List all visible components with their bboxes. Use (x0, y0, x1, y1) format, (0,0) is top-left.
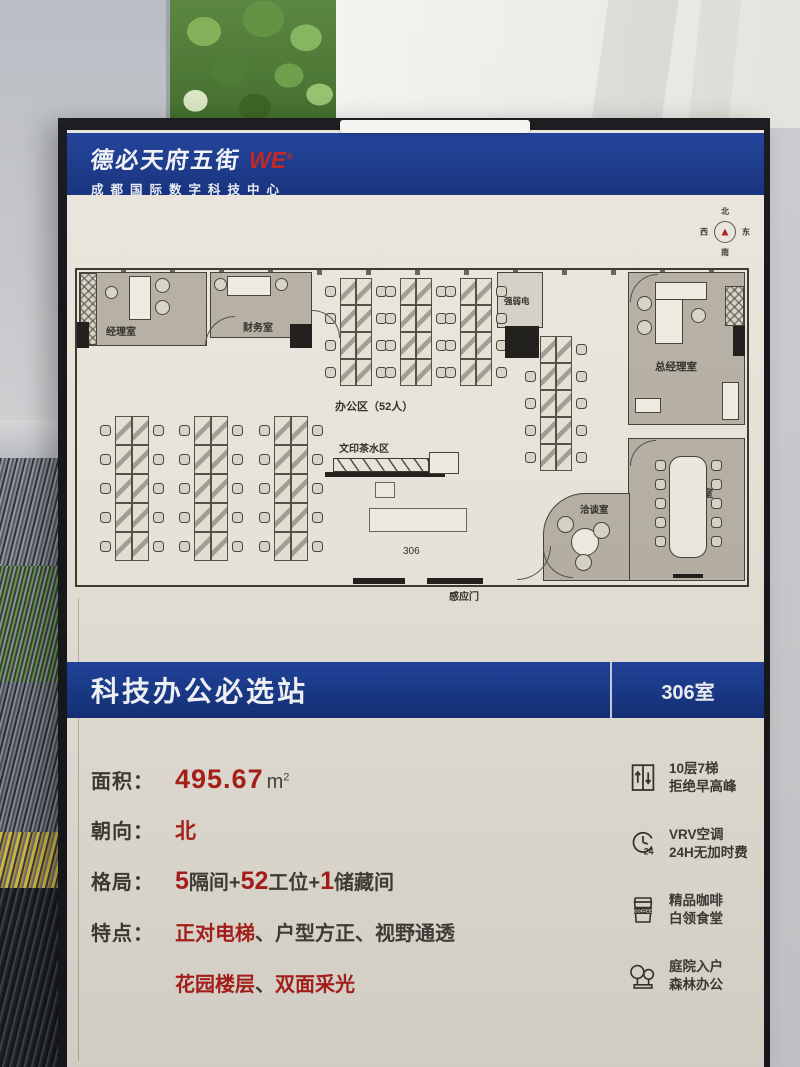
desk-cell (400, 332, 416, 359)
amenity-line1: 庭院入户 (669, 958, 723, 976)
svg-text:24: 24 (644, 846, 654, 856)
structural-pillar (733, 326, 745, 356)
chair (525, 425, 536, 436)
desk-cell (115, 445, 132, 474)
text-segment: 储藏间 (334, 872, 394, 894)
svg-text:COFFEE: COFFEE (634, 908, 652, 913)
cabinet-outline (369, 508, 467, 532)
desk-cell (356, 278, 372, 305)
structural-pillar (77, 322, 89, 348)
brand-subtitle: 成都国际数字科技中心 (91, 179, 764, 198)
desk-cell (400, 359, 416, 386)
chair (153, 541, 164, 552)
chair (179, 541, 190, 552)
chair (385, 313, 396, 324)
chair (232, 512, 243, 523)
chair (259, 425, 270, 436)
chair (312, 541, 323, 552)
meeting-table (669, 456, 707, 558)
chair (655, 517, 666, 528)
chair (153, 512, 164, 523)
amenity-item: COFFEE精品咖啡白领食堂 (627, 892, 764, 928)
round-chair (593, 522, 610, 539)
facing-label: 朝向： (91, 815, 175, 844)
area-label: 面积： (91, 765, 175, 794)
frame-glare (340, 120, 530, 133)
round-chair (155, 278, 170, 293)
desk-cell (115, 532, 132, 561)
facing-value: 北 (175, 815, 196, 845)
chair (312, 454, 323, 465)
text-segment: 隔间+ (189, 872, 241, 894)
desk-cell (211, 445, 228, 474)
text-segment: 52 (241, 867, 269, 895)
desk-cell (291, 503, 308, 532)
text-segment: 户型方正 (275, 923, 355, 945)
tea-counter (333, 458, 429, 472)
desk-cell (416, 305, 432, 332)
chair (525, 452, 536, 463)
chair (496, 367, 507, 378)
desk-cell (194, 474, 211, 503)
features-label: 特点： (91, 917, 175, 946)
desk-cell (115, 416, 132, 445)
round-chair (557, 516, 574, 533)
desk-cell (460, 278, 476, 305)
amenity-line2: 24H无加时费 (669, 844, 748, 862)
round-chair (275, 278, 288, 291)
chair (153, 425, 164, 436)
elevator-icon (627, 760, 659, 796)
title-banner: 科技办公必选站 306室 (67, 662, 764, 718)
room-label-manager: 经理室 (106, 323, 136, 338)
chair (232, 454, 243, 465)
chair (100, 541, 111, 552)
chair (445, 313, 456, 324)
chair (312, 425, 323, 436)
desk-cell (291, 445, 308, 474)
chair (100, 425, 111, 436)
desk-cell (194, 503, 211, 532)
amenity-line1: 10层7梯 (669, 760, 737, 778)
desk-cell (194, 532, 211, 561)
chair (576, 344, 587, 355)
text-segment: 正对电梯 (175, 923, 255, 945)
amenity-text: 庭院入户森林办公 (669, 958, 723, 994)
brand-name: 德必天府五街 (89, 141, 243, 175)
cabinet-hatch (725, 286, 744, 326)
trees-icon (627, 958, 659, 994)
amenity-item: 10层7梯拒绝早高峰 (627, 760, 764, 796)
desk-cell (211, 503, 228, 532)
amenity-text: 10层7梯拒绝早高峰 (669, 760, 737, 796)
round-chair (155, 300, 170, 315)
desk-cell (556, 336, 572, 363)
text-segment: 、 (255, 974, 275, 996)
chair (655, 479, 666, 490)
desk-cell (194, 416, 211, 445)
structural-pillar (673, 574, 703, 578)
desk-cell (132, 445, 149, 474)
plan-label: 文印茶水区 (339, 440, 389, 455)
desk-cell (115, 503, 132, 532)
chair (496, 286, 507, 297)
chair (232, 483, 243, 494)
chair (325, 340, 336, 351)
chair (711, 536, 722, 547)
desk-cell (274, 503, 291, 532)
chair (385, 367, 396, 378)
chair (445, 340, 456, 351)
layout-label: 格局： (91, 866, 175, 895)
desk-cell (556, 444, 572, 471)
text-segment: 花园楼层 (175, 974, 255, 996)
desk (227, 276, 271, 296)
amenity-line2: 森林办公 (669, 976, 723, 994)
spec-layout: 格局： 5隔间+52工位+1储藏间 (91, 866, 611, 899)
round-chair (637, 320, 652, 335)
cabinet-outline (375, 482, 395, 498)
window-with-trees (166, 0, 340, 126)
spec-area: 面积： 495.67 m2 (91, 764, 611, 797)
plan-label: 办公区（52人） (335, 398, 413, 414)
round-chair (691, 308, 706, 323)
desk-cell (132, 474, 149, 503)
structural-pillar (505, 326, 539, 358)
compass-north: 北 (721, 206, 729, 217)
desk-cell (274, 532, 291, 561)
spec-facing: 朝向： 北 (91, 815, 611, 848)
text-segment: 视野通透 (375, 923, 455, 945)
desk-cell (540, 336, 556, 363)
desk-cell (132, 503, 149, 532)
round-chair (575, 554, 592, 571)
desk-cell (274, 416, 291, 445)
chair (655, 460, 666, 471)
chair (576, 452, 587, 463)
amenity-line1: VRV空调 (669, 826, 748, 844)
room-label-talk: 洽谈室 (580, 502, 609, 516)
brand-logo-we: WE® (249, 147, 293, 174)
features-value-1: 正对电梯、户型方正、视野通透 (175, 917, 455, 946)
amenity-line1: 精品咖啡 (669, 892, 723, 910)
floor-plan: 经理室财务室强弱电总经理室会议室洽谈室办公区（52人）文印茶水区306感应门 (75, 268, 749, 587)
spec-list: 面积： 495.67 m2 朝向： 北 格局： 5隔间+52工位+1储藏间 特点… (91, 764, 611, 1019)
chair (711, 460, 722, 471)
desk-cell (356, 332, 372, 359)
compass-south: 南 (721, 247, 729, 258)
desk-cell (476, 278, 492, 305)
desk-cell (460, 359, 476, 386)
chair (312, 512, 323, 523)
desk-cell (132, 532, 149, 561)
chair (232, 541, 243, 552)
compass-arrow-icon: ▲ (719, 225, 731, 239)
structural-pillar (325, 472, 445, 477)
desk-cell (115, 474, 132, 503)
chair (100, 483, 111, 494)
compass-east: 东 (742, 227, 750, 238)
chair (259, 483, 270, 494)
chair (179, 512, 190, 523)
desk-cell (211, 416, 228, 445)
chair (259, 454, 270, 465)
text-segment: 1 (320, 867, 334, 895)
desk-cell (356, 305, 372, 332)
chair (259, 541, 270, 552)
structural-pillar (290, 324, 312, 348)
chair (179, 454, 190, 465)
chair (711, 498, 722, 509)
text-segment: 、 (355, 923, 375, 945)
desk-cell (476, 359, 492, 386)
desk-cell (476, 332, 492, 359)
structural-pillar (427, 578, 483, 584)
desk-cell (416, 359, 432, 386)
compass: 北 东 南 西 ▲ (699, 206, 751, 258)
desk-cell (132, 416, 149, 445)
chair (385, 286, 396, 297)
desk-cell (340, 332, 356, 359)
desk-cell (540, 363, 556, 390)
plan-label: 306 (403, 546, 420, 557)
chair (445, 367, 456, 378)
text-segment: 5 (175, 867, 189, 895)
desk (655, 282, 707, 300)
desk (129, 276, 151, 320)
clock-24-icon: 24 (627, 826, 659, 862)
amenity-item: 24VRV空调24H无加时费 (627, 826, 764, 862)
poster-body: 德必天府五街WE® 成都国际数字科技中心 北 东 南 西 ▲ 经理室财务室强弱电… (67, 130, 764, 1067)
desk-cell (211, 532, 228, 561)
text-segment: 工位+ (268, 872, 320, 894)
structural-pillar (353, 578, 405, 584)
area-unit: m2 (267, 771, 290, 794)
desk-cell (540, 390, 556, 417)
amenity-text: VRV空调24H无加时费 (669, 826, 748, 862)
desk-cell (194, 445, 211, 474)
chair (576, 425, 587, 436)
features-value-2: 花园楼层、双面采光 (175, 968, 355, 997)
chair (232, 425, 243, 436)
amenity-text: 精品咖啡白领食堂 (669, 892, 723, 928)
desk-cell (540, 417, 556, 444)
chair (445, 286, 456, 297)
chair (576, 371, 587, 382)
chair (100, 454, 111, 465)
amenity-line2: 白领食堂 (669, 910, 723, 928)
chair (525, 371, 536, 382)
chair (179, 483, 190, 494)
desk-cell (211, 474, 228, 503)
coffee-icon: COFFEE (627, 892, 659, 928)
amenity-item: 庭院入户森林办公 (627, 958, 764, 994)
desk-cell (340, 305, 356, 332)
brand-header: 德必天府五街WE® 成都国际数字科技中心 (67, 133, 764, 195)
room-label-gm: 总经理室 (655, 359, 697, 374)
desk (722, 382, 739, 420)
desk (635, 398, 661, 413)
chair (325, 286, 336, 297)
compass-west: 西 (700, 227, 708, 238)
chair (100, 512, 111, 523)
chair (385, 340, 396, 351)
round-chair (105, 286, 118, 299)
chair (496, 313, 507, 324)
room-label-finance: 财务室 (243, 319, 273, 334)
desk-cell (291, 474, 308, 503)
desk (429, 452, 459, 474)
area-value: 495.67 (175, 764, 264, 795)
chair (655, 498, 666, 509)
desk-cell (356, 359, 372, 386)
desk-cell (400, 278, 416, 305)
desk-cell (340, 359, 356, 386)
text-segment: 、 (255, 923, 275, 945)
poster-board: 德必天府五街WE® 成都国际数字科技中心 北 东 南 西 ▲ 经理室财务室强弱电… (58, 118, 770, 1067)
round-chair (214, 278, 227, 291)
door-swing-arc (312, 310, 340, 338)
amenities-list: 10层7梯拒绝早高峰24VRV空调24H无加时费COFFEE精品咖啡白领食堂庭院… (627, 760, 764, 994)
chair (179, 425, 190, 436)
layout-value: 5隔间+52工位+1储藏间 (175, 866, 394, 896)
chair (153, 454, 164, 465)
desk-cell (416, 332, 432, 359)
plan-label: 感应门 (449, 588, 479, 603)
desk-cell (460, 305, 476, 332)
desk-cell (556, 417, 572, 444)
desk-cell (340, 278, 356, 305)
room-number-badge: 306室 (612, 676, 764, 705)
banner-title: 科技办公必选站 (67, 670, 610, 710)
spec-features-1: 特点： 正对电梯、户型方正、视野通透 (91, 917, 611, 950)
chair (259, 512, 270, 523)
text-segment: 双面采光 (275, 974, 355, 996)
amenity-line2: 拒绝早高峰 (669, 778, 737, 796)
chair (525, 398, 536, 409)
chair (576, 398, 587, 409)
desk-cell (476, 305, 492, 332)
desk-cell (274, 445, 291, 474)
room-label-electrical: 强弱电 (504, 295, 530, 307)
desk-cell (416, 278, 432, 305)
chair (711, 517, 722, 528)
chair (153, 483, 164, 494)
desk-cell (460, 332, 476, 359)
chair (325, 367, 336, 378)
chair (312, 483, 323, 494)
desk-cell (291, 416, 308, 445)
chair (655, 536, 666, 547)
chair (711, 479, 722, 490)
desk-cell (540, 444, 556, 471)
desk-cell (400, 305, 416, 332)
spec-features-2: 花园楼层、双面采光 (175, 968, 611, 1001)
desk-cell (556, 390, 572, 417)
desk-cell (556, 363, 572, 390)
desk-cell (274, 474, 291, 503)
desk-cell (291, 532, 308, 561)
